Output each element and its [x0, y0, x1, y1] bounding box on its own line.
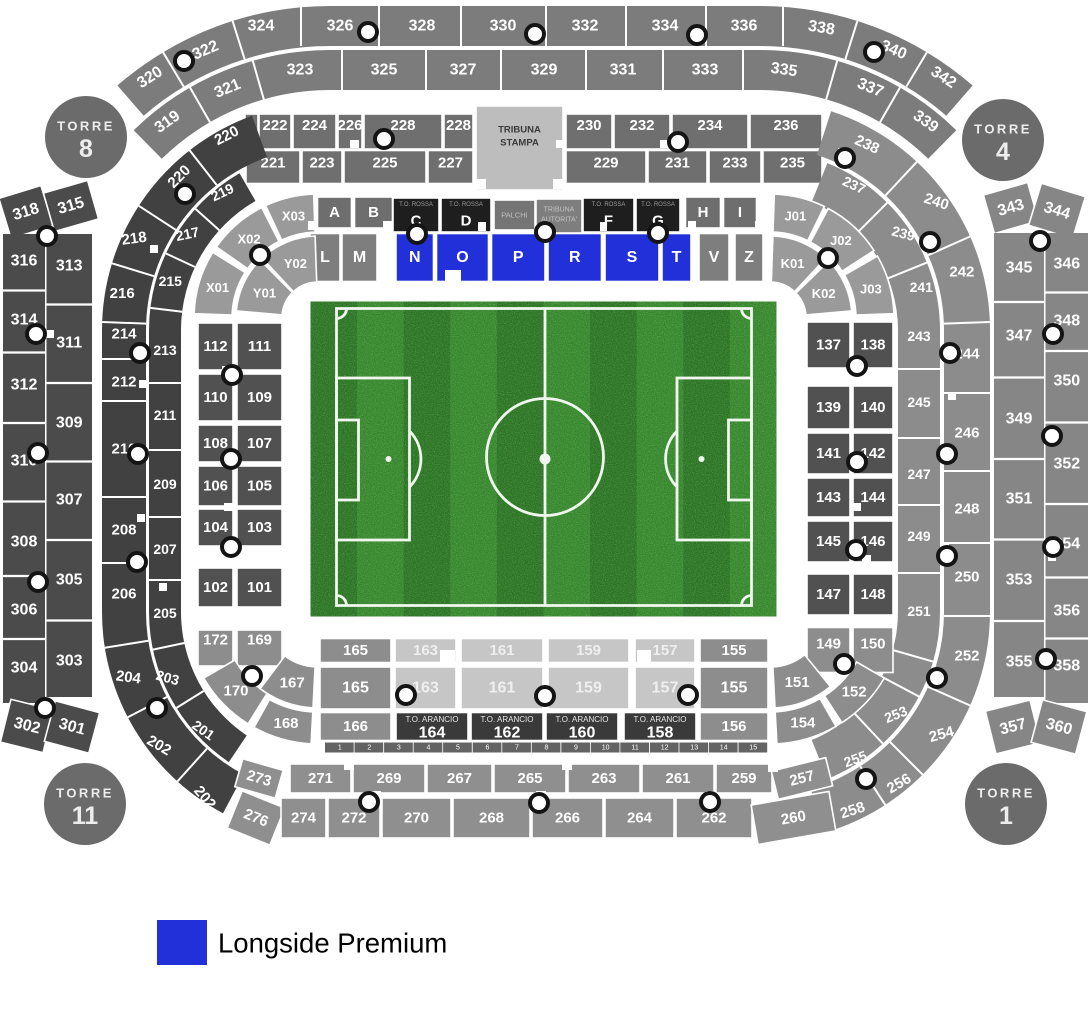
- svg-text:226: 226: [337, 117, 362, 134]
- svg-text:D: D: [461, 213, 472, 230]
- svg-text:1: 1: [999, 802, 1013, 830]
- svg-text:TORRE: TORRE: [56, 786, 114, 801]
- svg-text:208: 208: [111, 522, 136, 539]
- svg-text:X02: X02: [238, 231, 261, 246]
- svg-text:T.O. ROSSA: T.O. ROSSA: [592, 202, 626, 208]
- svg-text:8: 8: [79, 135, 93, 163]
- svg-text:15: 15: [749, 745, 757, 752]
- svg-text:332: 332: [572, 18, 599, 35]
- svg-text:165: 165: [343, 642, 368, 659]
- svg-text:250: 250: [954, 569, 979, 586]
- svg-text:161: 161: [489, 680, 516, 697]
- svg-text:V: V: [709, 249, 720, 266]
- svg-text:325: 325: [371, 62, 398, 79]
- svg-text:T.O. ROSSA: T.O. ROSSA: [449, 202, 483, 208]
- svg-text:169: 169: [247, 632, 272, 649]
- svg-text:103: 103: [247, 519, 272, 536]
- svg-text:227: 227: [438, 155, 463, 172]
- svg-text:158: 158: [647, 725, 674, 742]
- svg-text:T.O. ROSSA: T.O. ROSSA: [399, 202, 433, 208]
- svg-text:R: R: [569, 249, 581, 266]
- svg-text:111: 111: [248, 338, 271, 355]
- svg-text:303: 303: [56, 653, 83, 670]
- svg-text:137: 137: [816, 337, 841, 354]
- svg-text:M: M: [353, 249, 366, 266]
- svg-text:Longside Premium: Longside Premium: [218, 928, 447, 959]
- svg-text:349: 349: [1006, 411, 1033, 428]
- svg-text:TORRE: TORRE: [977, 786, 1035, 801]
- svg-text:271: 271: [308, 770, 333, 787]
- svg-text:224: 224: [302, 117, 328, 134]
- svg-text:151: 151: [785, 674, 810, 691]
- svg-text:333: 333: [692, 62, 719, 79]
- svg-text:143: 143: [816, 489, 841, 506]
- svg-text:345: 345: [1006, 260, 1033, 277]
- svg-text:156: 156: [721, 718, 746, 735]
- svg-text:334: 334: [652, 18, 679, 35]
- svg-text:145: 145: [816, 533, 841, 550]
- svg-text:209: 209: [153, 476, 177, 492]
- svg-text:T.O. ARANCIO: T.O. ARANCIO: [406, 715, 459, 724]
- svg-text:107: 107: [247, 435, 272, 452]
- svg-text:352: 352: [1053, 456, 1080, 473]
- svg-text:104: 104: [203, 519, 229, 536]
- svg-text:T.O. ARANCIO: T.O. ARANCIO: [634, 715, 687, 724]
- svg-text:264: 264: [627, 810, 653, 827]
- svg-text:230: 230: [576, 117, 601, 134]
- svg-text:101: 101: [247, 579, 272, 596]
- svg-text:TRIBUNA: TRIBUNA: [544, 207, 575, 214]
- svg-text:267: 267: [447, 770, 472, 787]
- svg-text:8: 8: [545, 745, 549, 752]
- svg-text:I: I: [738, 204, 742, 221]
- svg-text:PALCHI: PALCHI: [501, 211, 528, 220]
- svg-text:204: 204: [115, 667, 143, 687]
- svg-text:270: 270: [404, 810, 429, 827]
- svg-text:231: 231: [665, 155, 690, 172]
- svg-text:102: 102: [203, 579, 228, 596]
- svg-text:228: 228: [390, 117, 415, 134]
- svg-text:T: T: [672, 249, 682, 266]
- svg-text:13: 13: [690, 745, 698, 752]
- svg-text:246: 246: [954, 425, 979, 442]
- svg-text:316: 316: [11, 253, 38, 270]
- svg-text:223: 223: [309, 155, 334, 172]
- svg-text:232: 232: [629, 117, 654, 134]
- svg-text:14: 14: [720, 745, 728, 752]
- svg-text:K02: K02: [812, 286, 836, 301]
- svg-text:168: 168: [273, 715, 298, 732]
- svg-text:P: P: [513, 249, 524, 266]
- svg-text:Y01: Y01: [253, 286, 276, 301]
- svg-text:331: 331: [610, 62, 637, 79]
- svg-text:144: 144: [860, 489, 886, 506]
- svg-text:O: O: [456, 249, 468, 266]
- svg-text:T.O. ARANCIO: T.O. ARANCIO: [556, 715, 609, 724]
- svg-text:167: 167: [280, 674, 305, 691]
- svg-text:269: 269: [376, 770, 401, 787]
- svg-text:TRIBUNA: TRIBUNA: [498, 125, 541, 136]
- svg-text:313: 313: [56, 258, 83, 275]
- svg-text:152: 152: [842, 683, 867, 700]
- svg-text:108: 108: [203, 435, 228, 452]
- svg-text:11: 11: [72, 802, 99, 830]
- svg-text:233: 233: [722, 155, 747, 172]
- svg-text:266: 266: [555, 810, 580, 827]
- svg-text:TORRE: TORRE: [57, 119, 115, 134]
- svg-text:259: 259: [731, 770, 756, 787]
- svg-text:206: 206: [111, 586, 136, 603]
- svg-text:268: 268: [479, 810, 504, 827]
- svg-text:109: 109: [247, 389, 272, 406]
- svg-text:T.O. ROSSA: T.O. ROSSA: [641, 202, 675, 208]
- svg-text:306: 306: [11, 602, 38, 619]
- svg-text:165: 165: [342, 680, 369, 697]
- svg-text:216: 216: [110, 285, 135, 302]
- svg-text:172: 172: [203, 632, 228, 649]
- svg-text:106: 106: [203, 478, 228, 495]
- svg-text:159: 159: [576, 642, 601, 659]
- svg-text:243: 243: [907, 328, 931, 344]
- svg-text:141: 141: [816, 445, 841, 462]
- svg-text:356: 356: [1053, 603, 1080, 620]
- svg-text:241: 241: [910, 279, 934, 295]
- svg-text:353: 353: [1006, 572, 1033, 589]
- svg-text:305: 305: [56, 572, 83, 589]
- svg-text:TORRE: TORRE: [974, 122, 1032, 137]
- svg-text:308: 308: [11, 534, 38, 551]
- svg-text:H: H: [698, 204, 709, 221]
- svg-text:213: 213: [153, 342, 177, 358]
- svg-text:215: 215: [159, 273, 183, 289]
- svg-text:10: 10: [602, 745, 610, 752]
- svg-text:312: 312: [11, 377, 38, 394]
- svg-text:A: A: [329, 204, 340, 221]
- svg-text:274: 274: [291, 810, 317, 827]
- svg-text:139: 139: [816, 399, 841, 416]
- svg-text:358: 358: [1053, 658, 1080, 675]
- svg-text:207: 207: [153, 541, 177, 557]
- svg-text:148: 148: [860, 586, 885, 603]
- svg-text:327: 327: [450, 62, 477, 79]
- svg-text:265: 265: [517, 770, 542, 787]
- svg-text:245: 245: [907, 394, 931, 410]
- svg-text:S: S: [627, 249, 638, 266]
- svg-text:263: 263: [591, 770, 616, 787]
- svg-text:140: 140: [860, 399, 885, 416]
- svg-text:252: 252: [954, 648, 979, 665]
- svg-text:X03: X03: [282, 208, 305, 223]
- svg-text:7: 7: [515, 745, 519, 752]
- svg-text:4: 4: [426, 745, 430, 752]
- svg-text:150: 150: [860, 636, 885, 653]
- svg-text:249: 249: [907, 528, 931, 544]
- svg-text:355: 355: [1006, 654, 1033, 671]
- svg-text:159: 159: [575, 680, 602, 697]
- svg-text:112: 112: [203, 338, 227, 355]
- svg-text:X01: X01: [206, 280, 229, 295]
- svg-text:222: 222: [262, 117, 287, 134]
- svg-text:218: 218: [121, 229, 148, 249]
- svg-text:J02: J02: [830, 233, 852, 248]
- svg-text:Y02: Y02: [284, 256, 307, 271]
- svg-text:T.O. ARANCIO: T.O. ARANCIO: [481, 715, 534, 724]
- svg-text:261: 261: [665, 770, 690, 787]
- svg-text:242: 242: [949, 264, 974, 281]
- svg-text:155: 155: [721, 680, 748, 697]
- svg-text:236: 236: [773, 117, 798, 134]
- svg-text:307: 307: [56, 492, 83, 509]
- svg-text:2: 2: [367, 745, 371, 752]
- svg-text:154: 154: [790, 715, 816, 732]
- svg-text:J03: J03: [860, 282, 882, 297]
- svg-text:157: 157: [652, 642, 677, 659]
- svg-text:212: 212: [111, 374, 136, 391]
- svg-text:326: 326: [327, 18, 354, 35]
- svg-text:164: 164: [419, 725, 446, 742]
- svg-text:330: 330: [490, 18, 517, 35]
- svg-text:272: 272: [341, 810, 366, 827]
- svg-text:350: 350: [1053, 373, 1080, 390]
- svg-text:225: 225: [372, 155, 397, 172]
- svg-text:105: 105: [247, 478, 272, 495]
- svg-text:309: 309: [56, 415, 83, 432]
- svg-text:324: 324: [248, 18, 275, 35]
- svg-text:Z: Z: [744, 249, 754, 266]
- svg-text:235: 235: [780, 155, 805, 172]
- svg-text:161: 161: [489, 642, 514, 659]
- svg-text:9: 9: [574, 745, 578, 752]
- svg-text:6: 6: [485, 745, 489, 752]
- svg-text:304: 304: [11, 660, 38, 677]
- svg-text:110: 110: [203, 389, 227, 406]
- svg-text:214: 214: [111, 326, 137, 343]
- svg-text:229: 229: [593, 155, 618, 172]
- svg-text:166: 166: [343, 718, 368, 735]
- svg-text:K01: K01: [781, 256, 805, 271]
- svg-text:138: 138: [860, 337, 885, 354]
- svg-text:311: 311: [56, 335, 82, 352]
- svg-text:248: 248: [954, 501, 979, 518]
- svg-text:3: 3: [397, 745, 401, 752]
- svg-text:328: 328: [409, 18, 436, 35]
- svg-text:329: 329: [531, 62, 558, 79]
- svg-text:155: 155: [721, 642, 746, 659]
- svg-text:234: 234: [697, 117, 723, 134]
- svg-text:B: B: [368, 204, 379, 221]
- svg-text:162: 162: [494, 725, 521, 742]
- svg-text:170: 170: [223, 683, 248, 700]
- svg-text:L: L: [320, 249, 330, 266]
- svg-text:149: 149: [816, 636, 841, 653]
- svg-text:4: 4: [996, 138, 1010, 166]
- svg-text:251: 251: [907, 603, 931, 619]
- svg-text:147: 147: [816, 586, 841, 603]
- svg-text:5: 5: [456, 745, 460, 752]
- svg-text:J01: J01: [785, 209, 807, 224]
- svg-text:323: 323: [287, 62, 314, 79]
- svg-text:205: 205: [153, 605, 177, 621]
- svg-text:N: N: [409, 249, 421, 266]
- svg-text:163: 163: [413, 642, 438, 659]
- svg-text:247: 247: [907, 466, 931, 482]
- svg-text:347: 347: [1006, 328, 1033, 345]
- svg-text:1: 1: [338, 745, 342, 752]
- svg-text:11: 11: [631, 745, 638, 752]
- svg-text:211: 211: [154, 407, 177, 423]
- svg-text:160: 160: [569, 725, 596, 742]
- svg-text:351: 351: [1006, 491, 1033, 508]
- svg-text:12: 12: [661, 745, 669, 752]
- svg-text:157: 157: [652, 680, 679, 697]
- svg-text:346: 346: [1053, 256, 1080, 273]
- svg-text:228: 228: [446, 117, 471, 134]
- svg-text:STAMPA: STAMPA: [500, 138, 539, 149]
- svg-text:336: 336: [731, 18, 758, 35]
